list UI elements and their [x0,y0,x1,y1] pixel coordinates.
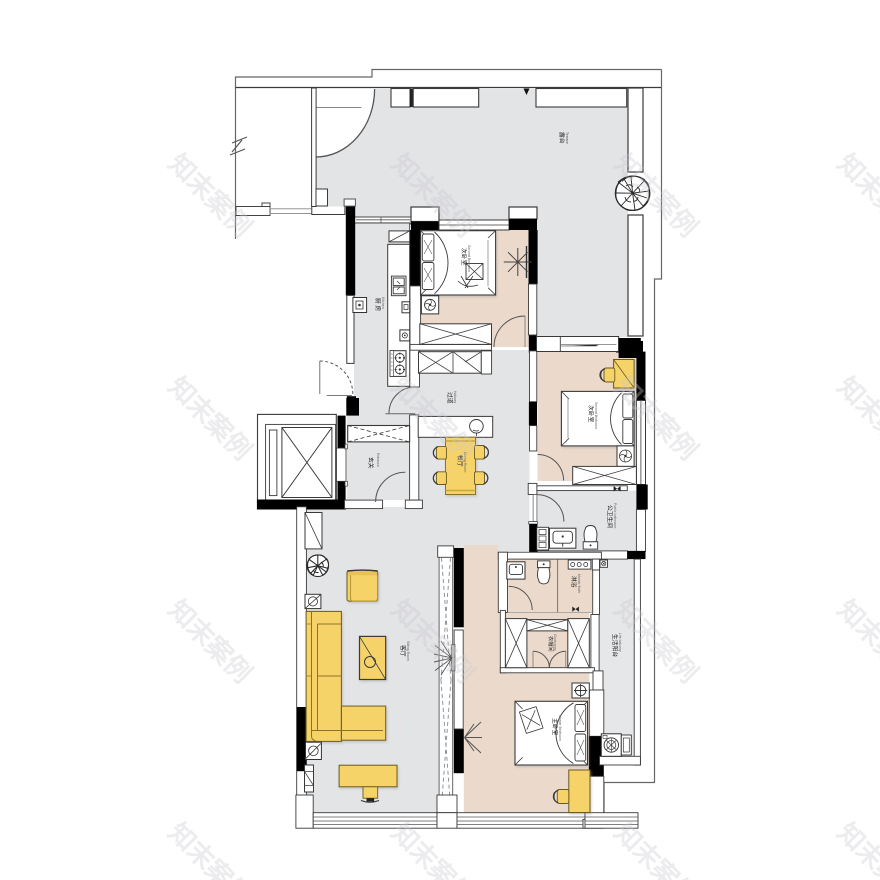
svg-text:过道: 过道 [446,392,454,404]
svg-text:Entrance: Entrance [376,453,380,467]
svg-text:Cloakroom: Cloakroom [553,634,557,651]
svg-text:公卫生间: 公卫生间 [606,505,614,528]
svg-text:露台: 露台 [558,132,566,144]
svg-text:知末案例: 知末案例 [832,371,880,466]
svg-text:知末案例: 知末案例 [609,817,704,880]
svg-text:知末案例: 知末案例 [832,817,880,880]
svg-text:Hallway: Hallway [453,391,457,404]
svg-text:玄关: 玄关 [367,457,375,469]
svg-text:Sitting Room: Sitting Room [406,641,410,661]
svg-text:次卧室: 次卧室 [587,405,595,423]
svg-text:生活阳台: 生活阳台 [611,634,619,657]
svg-text:Life balcony: Life balcony [618,633,622,652]
svg-text:知末案例: 知末案例 [163,148,258,243]
svg-text:知末案例: 知末案例 [832,594,880,689]
svg-text:知末案例: 知末案例 [163,817,258,880]
svg-text:Terrace: Terrace [565,132,569,144]
svg-text:Master Bedroom: Master Bedroom [558,715,562,741]
svg-text:知末案例: 知末案例 [163,594,258,689]
svg-text:次卧室: 次卧室 [460,248,468,266]
svg-text:主卧室: 主卧室 [551,718,559,736]
svg-text:厨 房: 厨 房 [374,298,382,311]
svg-text:客厅: 客厅 [399,645,407,657]
svg-text:淋浴: 淋浴 [570,576,578,588]
svg-text:知末案例: 知末案例 [832,148,880,243]
svg-text:Second Bedroom: Second Bedroom [594,402,598,429]
svg-text:Master Bath: Master Bath [577,574,581,593]
svg-text:知末案例: 知末案例 [163,371,258,466]
svg-text:Second Bedroom: Second Bedroom [467,245,471,272]
svg-text:Public bathroom: Public bathroom [613,503,617,528]
svg-text:Kitchen: Kitchen [381,297,385,309]
